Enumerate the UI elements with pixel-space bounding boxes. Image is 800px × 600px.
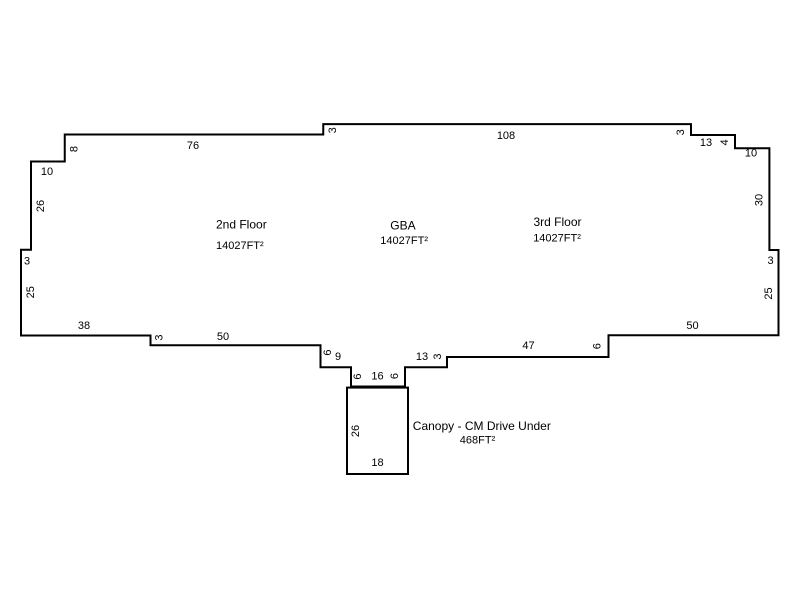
svg-text:3: 3 — [767, 255, 773, 267]
svg-text:16: 16 — [371, 371, 383, 383]
svg-text:9: 9 — [335, 351, 341, 363]
svg-text:4: 4 — [719, 139, 731, 145]
svg-text:50: 50 — [686, 320, 698, 332]
svg-text:25: 25 — [763, 287, 775, 299]
svg-text:47: 47 — [522, 340, 534, 352]
svg-text:3: 3 — [24, 255, 30, 267]
svg-text:50: 50 — [217, 331, 229, 343]
svg-text:14027FT²: 14027FT² — [216, 240, 264, 252]
svg-text:108: 108 — [497, 130, 515, 142]
svg-text:3rd Floor: 3rd Floor — [534, 215, 582, 229]
svg-text:6: 6 — [592, 343, 604, 349]
svg-text:26: 26 — [35, 200, 47, 212]
svg-text:468FT²: 468FT² — [460, 434, 496, 446]
svg-text:GBA: GBA — [390, 218, 415, 232]
svg-text:10: 10 — [41, 166, 53, 178]
svg-text:3: 3 — [154, 334, 166, 340]
svg-text:13: 13 — [700, 137, 712, 149]
svg-text:3: 3 — [432, 353, 444, 359]
svg-text:6: 6 — [322, 349, 334, 355]
svg-text:8: 8 — [69, 146, 81, 152]
svg-text:18: 18 — [371, 457, 383, 469]
svg-text:76: 76 — [187, 140, 199, 152]
svg-text:Canopy - CM Drive Under: Canopy - CM Drive Under — [413, 419, 551, 433]
svg-text:14027FT²: 14027FT² — [380, 235, 428, 247]
svg-text:2nd Floor: 2nd Floor — [216, 217, 267, 231]
svg-text:25: 25 — [25, 286, 37, 298]
svg-text:38: 38 — [78, 320, 90, 332]
svg-text:3: 3 — [327, 127, 339, 133]
svg-text:13: 13 — [416, 351, 428, 363]
svg-text:14027FT²: 14027FT² — [533, 232, 581, 244]
svg-text:6: 6 — [389, 373, 401, 379]
svg-text:3: 3 — [675, 129, 687, 135]
svg-text:6: 6 — [352, 373, 364, 379]
svg-text:26: 26 — [350, 425, 362, 437]
svg-text:10: 10 — [745, 148, 757, 160]
svg-text:30: 30 — [754, 194, 766, 206]
